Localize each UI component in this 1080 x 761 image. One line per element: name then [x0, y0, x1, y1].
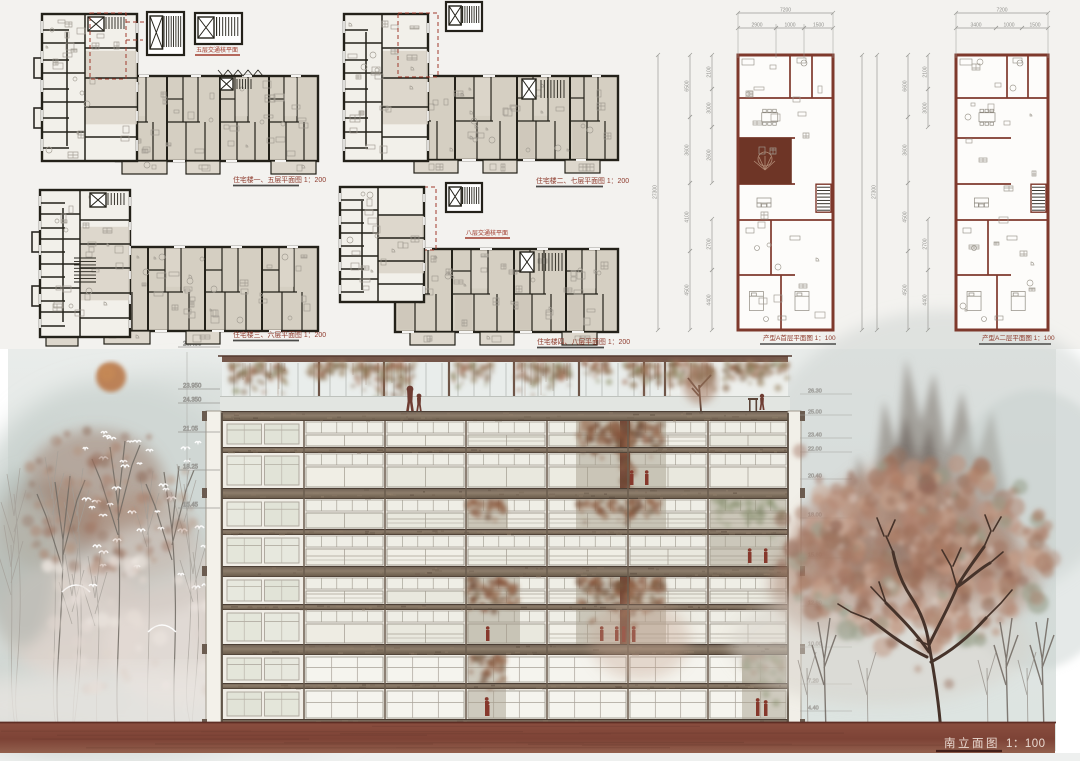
svg-text:4.40: 4.40 — [808, 706, 819, 712]
svg-text:2100: 2100 — [707, 66, 713, 77]
svg-text:6500: 6500 — [685, 80, 691, 91]
svg-text:产型A二层平面图 1：100: 产型A二层平面图 1：100 — [982, 333, 1055, 342]
svg-text:1500: 1500 — [1029, 23, 1040, 29]
svg-text:15.45: 15.45 — [183, 503, 199, 509]
svg-text:2100: 2100 — [923, 66, 929, 77]
svg-text:2700: 2700 — [707, 238, 713, 249]
svg-text:4500: 4500 — [685, 284, 691, 295]
svg-text:4100: 4100 — [685, 211, 691, 222]
svg-text:产型A首层平面图 1：100: 产型A首层平面图 1：100 — [763, 333, 836, 342]
svg-text:2600: 2600 — [707, 149, 713, 160]
svg-text:3600: 3600 — [685, 144, 691, 155]
svg-text:3000: 3000 — [923, 102, 929, 113]
svg-text:22.00: 22.00 — [808, 447, 822, 453]
svg-text:1：100: 1：100 — [1006, 738, 1046, 750]
svg-text:八层交通核平面: 八层交通核平面 — [466, 229, 508, 237]
svg-text:3400: 3400 — [970, 23, 981, 29]
svg-text:住宅楼三、六层平面图 1：200: 住宅楼三、六层平面图 1：200 — [233, 330, 326, 339]
svg-text:2900: 2900 — [751, 23, 762, 29]
svg-text:4400: 4400 — [923, 294, 929, 305]
svg-text:7200: 7200 — [996, 8, 1007, 14]
svg-text:3000: 3000 — [707, 102, 713, 113]
svg-text:27300: 27300 — [653, 185, 659, 199]
svg-text:27300: 27300 — [872, 185, 878, 199]
svg-text:4500: 4500 — [903, 284, 909, 295]
svg-text:21.05: 21.05 — [183, 427, 199, 433]
svg-text:23.950: 23.950 — [183, 384, 202, 390]
svg-text:1500: 1500 — [813, 23, 824, 29]
svg-text:五层交通核平面: 五层交通核平面 — [196, 46, 238, 54]
svg-text:1000: 1000 — [1003, 23, 1014, 29]
svg-text:南立面图: 南立面图 — [944, 736, 1000, 750]
svg-text:住宅楼一、五层平面图 1：200: 住宅楼一、五层平面图 1：200 — [233, 175, 326, 184]
svg-text:2700: 2700 — [923, 238, 929, 249]
svg-text:住宅楼四、八层平面图 1：200: 住宅楼四、八层平面图 1：200 — [537, 337, 630, 346]
svg-text:4500: 4500 — [903, 211, 909, 222]
svg-text:1000: 1000 — [784, 23, 795, 29]
svg-text:18.25: 18.25 — [183, 465, 199, 471]
svg-text:23.40: 23.40 — [808, 433, 822, 439]
svg-text:26.30: 26.30 — [808, 389, 822, 395]
svg-text:住宅楼二、七层平面图 1：200: 住宅楼二、七层平面图 1：200 — [536, 176, 629, 185]
svg-text:25.00: 25.00 — [808, 410, 822, 416]
svg-text:4400: 4400 — [707, 294, 713, 305]
svg-text:24.350: 24.350 — [183, 398, 202, 404]
svg-text:6600: 6600 — [903, 80, 909, 91]
svg-text:7200: 7200 — [780, 8, 791, 14]
svg-text:3600: 3600 — [903, 144, 909, 155]
